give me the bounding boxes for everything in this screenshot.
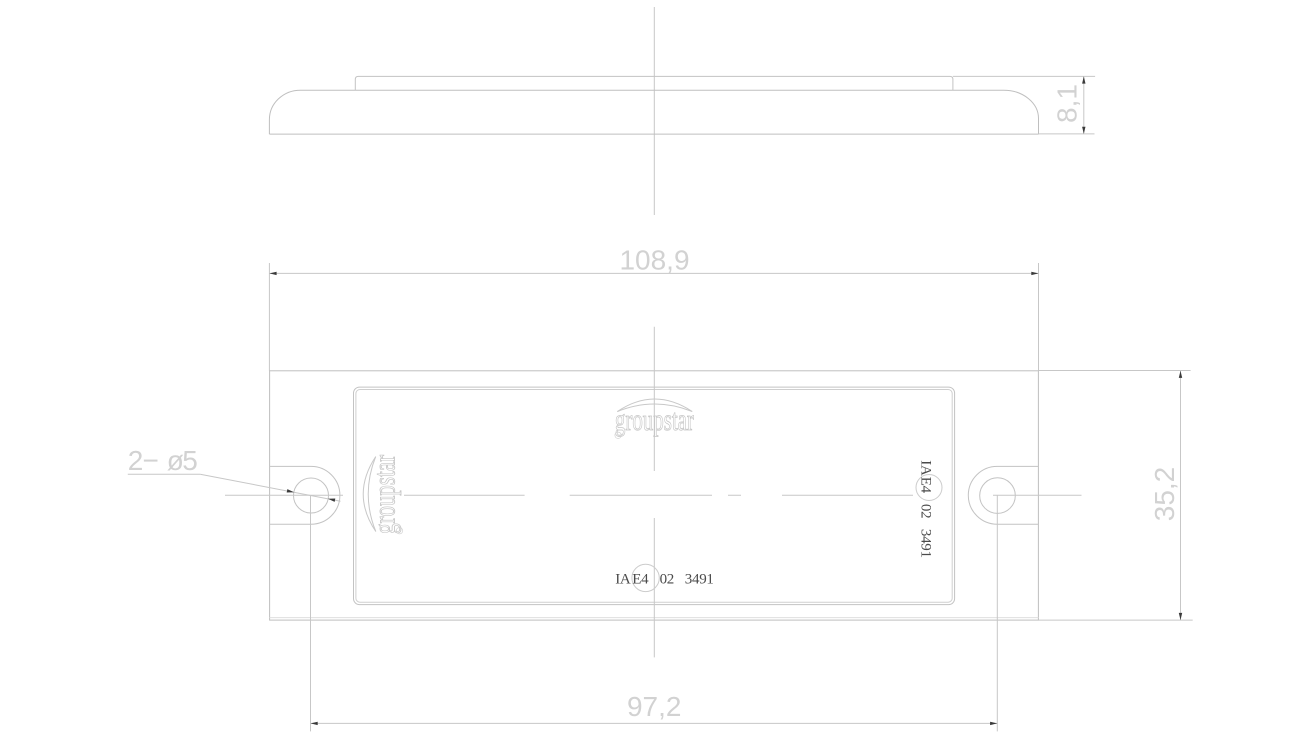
svg-text:35,2: 35,2 [1149,467,1180,522]
svg-text:8,1: 8,1 [1052,84,1083,123]
svg-text:IAE4023491: IAE4023491 [917,460,933,557]
svg-text:97,2: 97,2 [627,691,682,722]
svg-text:IAE4023491: IAE4023491 [615,572,713,588]
svg-text:108,9: 108,9 [619,244,689,275]
